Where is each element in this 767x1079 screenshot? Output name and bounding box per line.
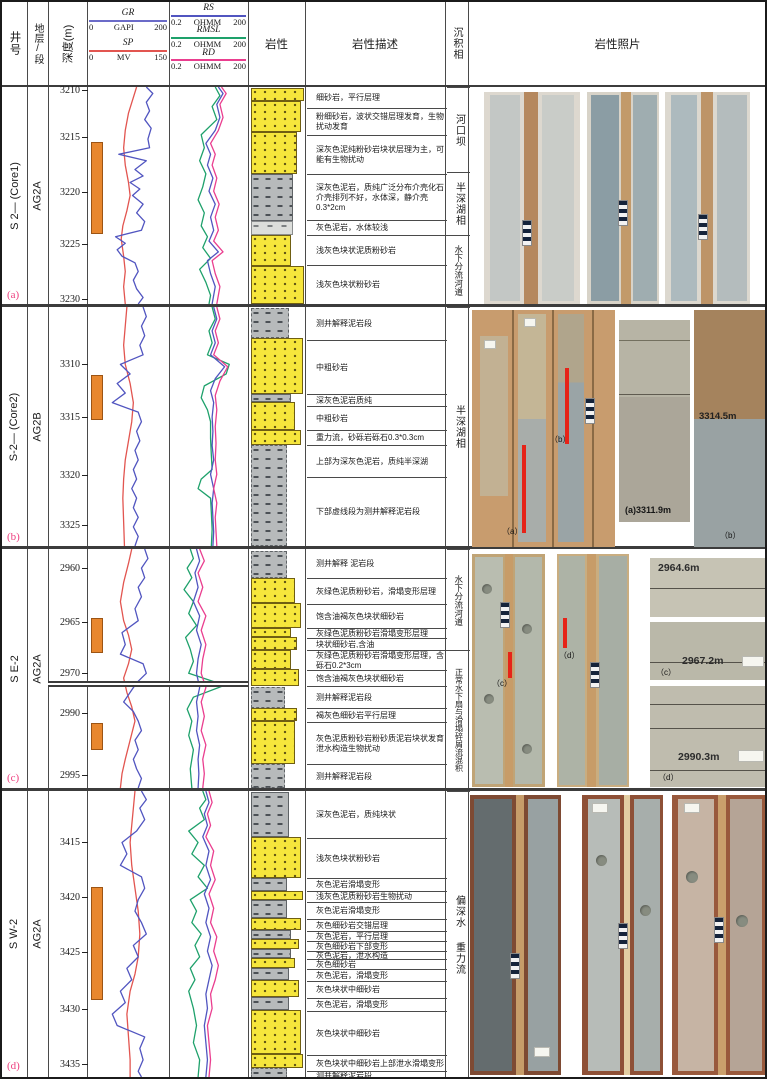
facies-label: 水下分流河道 <box>454 575 463 626</box>
curve-name-rd: RD <box>169 49 248 59</box>
lith-description: 灰绿色泥质粉砂岩滑塌变形层理，含砾石0.2*3cm <box>307 650 447 670</box>
lith-description: 饱含油褐灰色块状细砂岩 <box>307 670 447 686</box>
curve-name-rmsl: RMSL <box>169 26 248 36</box>
core-tag <box>742 656 764 667</box>
scale-card <box>714 917 724 943</box>
lith-unit-mudstone <box>251 687 285 708</box>
photo-annotation: (a)3311.9m <box>625 506 671 515</box>
panel-c-formation-label: AG2A <box>32 654 44 683</box>
rd-scale-hi: 200 <box>233 62 246 71</box>
lith-description: 下部虚线段为测井解释泥岩段 <box>307 477 447 546</box>
grid-line <box>248 2 249 1077</box>
depth-label: 2990 <box>44 708 80 719</box>
core-photo <box>484 92 580 304</box>
rd-scale-lo: 0.2 <box>171 62 182 71</box>
grid-line <box>305 2 306 1077</box>
core-tag <box>738 750 764 762</box>
lith-unit-gravel-sandstone <box>251 430 301 445</box>
photo-annotation: 3314.5m <box>699 412 737 422</box>
header-stratum-label: 地层/段 <box>30 23 45 64</box>
core-tag <box>592 803 608 813</box>
lith-unit-sandstone <box>251 235 291 266</box>
panel-label-c: (c) <box>7 772 19 784</box>
lith-unit-sandstone <box>251 837 301 878</box>
core-plug-hole <box>640 905 651 916</box>
core-photo <box>587 92 659 304</box>
lith-description: 浅灰色块状泥质粉砂岩 <box>307 235 447 265</box>
facies-zone: 水下分流河道 <box>447 235 470 304</box>
lith-unit-sandstone <box>251 918 301 930</box>
core-strip <box>474 799 512 1071</box>
wood-divider <box>516 795 524 1075</box>
panel-d-formation-label: AG2A <box>32 919 44 948</box>
core-plug-hole <box>482 584 492 594</box>
lith-description: 灰色泥岩，滑塌变形 <box>307 998 447 1011</box>
core-strip <box>694 420 767 547</box>
lith-description: 块状细砂岩,含油 <box>307 638 447 650</box>
lith-unit-sandstone <box>251 338 303 394</box>
lith-description: 重力流，砂砾岩砾石0.3*0.3cm <box>307 430 447 445</box>
lith-description: 浅灰色块状粉砂岩 <box>307 265 447 304</box>
panel-label-a: (a) <box>7 289 19 301</box>
depth-label: 3210 <box>44 85 80 96</box>
core-strip <box>633 95 657 301</box>
crack-line <box>650 728 767 729</box>
photo-annotation: （c） <box>656 669 676 677</box>
header-photo: 岩性照片 <box>468 2 767 85</box>
lith-description: 测井解释泥岩段 <box>307 764 447 788</box>
core-strip <box>678 799 714 1071</box>
lith-unit-sandstone <box>251 650 291 669</box>
crack-line <box>650 704 767 705</box>
depth-label: 3415 <box>44 837 80 848</box>
lith-unit-mudstone <box>251 394 291 402</box>
photo-annotation: （b） <box>720 532 740 540</box>
lith-description: 粉细砂岩，波状交错层理发育，生物扰动发育 <box>307 108 447 135</box>
wood-divider <box>524 92 538 304</box>
lith-description: 灰色块状中细砂岩上部泄水滑塌变形 <box>307 1055 447 1071</box>
header-lithology-label: 岩性 <box>265 36 288 52</box>
facies-zone: 偏深水 重力流 <box>447 791 470 1077</box>
lith-unit-sandstone <box>251 958 295 968</box>
sp-scale-lo: 0 <box>89 53 93 62</box>
lith-description: 中粗砂岩 <box>307 340 447 394</box>
log-track-res-d <box>170 791 248 1077</box>
rs-scale-hi: 200 <box>233 18 246 27</box>
photo-annotation: （a） <box>502 528 522 536</box>
core-tag <box>534 1047 550 1057</box>
scale-card <box>618 200 628 226</box>
scale-card <box>618 923 628 949</box>
core-marker-red <box>508 652 512 678</box>
scale-card <box>500 602 510 628</box>
lith-description: 灰色细砂岩交错层理 <box>307 919 447 931</box>
header-lithology: 岩性 <box>248 2 305 85</box>
lith-description: 深灰色泥岩质纯 <box>307 394 447 406</box>
header-track-gr-sp: GR 0 GAPI 200 SP 0 MV 150 <box>87 2 169 85</box>
panel-b-well-name: S-2— (Core2) <box>2 307 27 546</box>
panel-a-well-label: S 2— (Core1) <box>9 162 21 230</box>
core-strip <box>671 95 697 301</box>
header-track-resistivity: RS 0.2 OHMM 200 RMSL 0.2 OHMM 200 RD 0.2… <box>169 2 248 85</box>
core-plug-hole <box>522 744 532 754</box>
log-track-res-c <box>170 549 248 788</box>
scale-card <box>522 220 532 246</box>
core-photo <box>672 795 767 1075</box>
panel-b-formation: AG2B <box>27 307 48 546</box>
core-closeup-photo: (a)3311.9m <box>619 320 690 522</box>
header-stratum: 地层/段 <box>27 2 48 85</box>
lith-unit-sandstone <box>251 603 301 628</box>
photo-annotation: （d） <box>658 774 678 782</box>
panel-b-well-label: S-2— (Core2) <box>9 392 21 460</box>
core-photo: （d） <box>557 554 629 787</box>
panel-label-d: (d) <box>7 1060 20 1072</box>
depth-label: 3215 <box>44 132 80 143</box>
lith-unit-sandstone <box>251 101 301 132</box>
facies-label: 偏深水 <box>454 895 464 928</box>
core-photo <box>470 795 561 1075</box>
depth-label: 3325 <box>44 520 80 531</box>
log-track-gr-sp-d <box>88 791 169 1077</box>
facies-label: 半深湖相 <box>454 405 464 449</box>
lith-unit-mudstone <box>251 1068 287 1078</box>
core-strip <box>542 95 574 301</box>
core-strip <box>558 314 584 542</box>
wood-divider <box>701 92 713 304</box>
panel-b-formation-label: AG2B <box>32 412 44 441</box>
lith-description: 深灰色泥岩，质纯广泛分布介壳化石介壳排列不好，水体深，静介壳0.3*2cm <box>307 174 447 220</box>
core-tag <box>524 318 536 327</box>
lith-unit-sandstone <box>251 132 297 174</box>
depth-label: 3425 <box>44 947 80 958</box>
lith-unit-mudstone <box>251 900 287 918</box>
depth-label: 3220 <box>44 187 80 198</box>
core-plug-hole <box>522 624 532 634</box>
lith-unit-mudstone <box>251 930 291 939</box>
core-tag <box>684 803 700 813</box>
photo-annotation: 2990.3m <box>678 752 719 763</box>
gr-scale-hi: 200 <box>154 23 167 32</box>
panel-d-formation: AG2A <box>27 791 48 1077</box>
log-track-res-b <box>170 307 248 546</box>
facies-label: 水下分流河道 <box>454 245 463 296</box>
panel-c-well-name: S E-2 <box>2 549 27 788</box>
lith-unit-mudstone <box>251 968 289 980</box>
gr-scale-lo: 0 <box>89 23 93 32</box>
lith-description: 深灰色泥岩，质纯块状 <box>307 791 447 838</box>
lith-description: 灰色泥岩，水体较浅 <box>307 220 447 235</box>
lith-description: 灰色泥岩，平行层理 <box>307 931 447 941</box>
sp-scale-unit: MV <box>117 53 131 62</box>
rmsl-scale-lo: 0.2 <box>171 40 182 49</box>
lith-unit-mudstone <box>251 878 287 891</box>
curve-scale-rd: 0.2 OHMM 200 <box>169 62 248 71</box>
lith-description: 灰色泥质粉砂岩粉砂质泥岩块状发育泄水构造生物扰动 <box>307 722 447 764</box>
facies-label: 重力流 <box>454 942 464 975</box>
facies-zone: 正常水下扇与滑塌碎屑流混积 <box>447 650 470 788</box>
header-facies-label: 沉积相 <box>449 27 464 60</box>
header-description: 岩性描述 <box>305 2 445 85</box>
lith-unit-sandstone <box>251 708 297 721</box>
header-depth: 深度(m) <box>48 2 87 85</box>
lith-unit-sandstone <box>251 402 295 430</box>
core-strip <box>588 799 620 1071</box>
curve-scale-sp: 0 MV 150 <box>87 53 169 62</box>
curve-name-rs: RS <box>169 4 248 14</box>
header-depth-label: 深度(m) <box>60 24 76 63</box>
crack-line <box>619 340 690 341</box>
scale-card <box>698 214 708 240</box>
lith-unit-sandstone <box>251 939 299 949</box>
header-photo-label: 岩性照片 <box>595 36 641 52</box>
crack-line <box>650 588 767 589</box>
core-strip <box>591 95 619 301</box>
rd-scale-unit: OHMM <box>194 62 221 71</box>
gr-scale-unit: GAPI <box>114 23 134 32</box>
lith-description: 灰色泥岩，泄水构造 <box>307 951 447 959</box>
lith-description: 测井解释泥岩段 <box>307 307 447 340</box>
lith-unit-sandstone <box>251 669 299 686</box>
lith-description: 饱含油褐灰色块状细砂岩 <box>307 604 447 628</box>
curve-name-sp: SP <box>87 39 169 49</box>
depth-label: 3435 <box>44 1059 80 1070</box>
header-description-label: 岩性描述 <box>352 36 398 52</box>
lith-description: 中粗砂岩 <box>307 406 447 430</box>
lith-description: 测井解释 泥岩段 <box>307 549 447 578</box>
lith-unit-mudstone <box>251 551 287 578</box>
panel-a-well-name: S 2— (Core1) <box>2 87 27 304</box>
scale-card <box>510 953 520 979</box>
depth-label: 3430 <box>44 1004 80 1015</box>
header-well-number: 井号 <box>2 2 27 85</box>
depth-label: 3315 <box>44 412 80 423</box>
lith-description: 浅灰色泥质粉砂岩生物扰动 <box>307 891 447 902</box>
panel-a-formation-label: AG2A <box>32 181 44 210</box>
depth-label: 2960 <box>44 563 80 574</box>
scale-card <box>585 398 595 424</box>
core-closeup-photo: 3314.5m （b） <box>694 310 767 547</box>
lith-description: 细砂岩，平行层理 <box>307 87 447 108</box>
lith-unit-mudstone-inferred <box>251 308 289 338</box>
core-closeup-photo: 2990.3m （d） <box>650 686 767 787</box>
lith-description: 测井解释泥岩段 <box>307 1071 447 1079</box>
curve-name-gr: GR <box>87 9 169 19</box>
lith-unit-mudstone <box>251 949 291 958</box>
core-strip <box>490 95 520 301</box>
facies-zone: 水下分流河道 <box>447 549 470 650</box>
core-marker-red <box>565 368 569 444</box>
core-plug-hole <box>596 855 607 866</box>
facies-zone: 半深湖相 <box>447 307 470 546</box>
lith-unit-sandstone <box>251 637 297 650</box>
box-slat <box>592 310 594 547</box>
photo-annotation: 2967.2m <box>682 656 723 667</box>
core-marker-red <box>563 618 567 648</box>
sp-scale-hi: 150 <box>154 53 167 62</box>
core-box-photo: （a） （b） <box>472 310 615 547</box>
core-plug-hole <box>736 915 748 927</box>
facies-zone: 河口坝 <box>447 87 470 172</box>
core-closeup-photo: 2964.6m <box>650 558 767 617</box>
lith-unit-sandstone <box>251 721 295 764</box>
log-track-res-a <box>170 87 248 304</box>
scale-card <box>590 662 600 688</box>
lith-description: 灰绿色泥质粉砂岩，滑塌变形层理 <box>307 578 447 604</box>
depth-label: 2995 <box>44 770 80 781</box>
core-photo <box>582 795 663 1075</box>
rs-scale-lo: 0.2 <box>171 18 182 27</box>
panel-d-well-name: S W-2 <box>2 791 27 1077</box>
lith-description: 测井解释泥岩段 <box>307 686 447 708</box>
core-plug-hole <box>484 694 494 704</box>
depth-label: 2965 <box>44 617 80 628</box>
lith-unit-sandstone <box>251 88 304 101</box>
core-strip <box>599 556 627 785</box>
core-tag <box>484 340 496 349</box>
photo-annotation: （c） <box>492 680 512 688</box>
photo-annotation: 2964.6m <box>658 563 699 574</box>
core-plug-hole <box>686 871 698 883</box>
lith-unit-mudstone-light <box>251 221 293 235</box>
lith-description: 灰绿色泥质粉砂岩滑塌变形层理 <box>307 628 447 638</box>
lith-unit-mudstone <box>251 445 287 546</box>
lith-description: 灰色泥岩，滑塌变形 <box>307 969 447 981</box>
core-box-photo: （c） <box>472 554 545 787</box>
lith-description: 上部为深灰色泥岩，质纯半深湖 <box>307 445 447 477</box>
core-marker-red <box>522 445 526 533</box>
depth-label: 3420 <box>44 892 80 903</box>
lith-unit-sandstone <box>251 628 291 637</box>
log-track-gr-sp-b <box>88 307 169 546</box>
lith-description: 灰色细砂岩 <box>307 959 447 969</box>
wood-divider <box>621 92 631 304</box>
lith-description: 灰色块状中细砂岩 <box>307 981 447 998</box>
panel-d-well-label: S W-2 <box>9 919 21 949</box>
lith-unit-mudstone <box>251 764 285 788</box>
photo-annotation: （d） <box>559 652 579 660</box>
lith-unit-mudstone <box>251 174 293 221</box>
lith-description: 褐灰色细砂岩平行层理 <box>307 708 447 722</box>
depth-label: 3310 <box>44 359 80 370</box>
depth-label: 3225 <box>44 239 80 250</box>
depth-label: 3230 <box>44 294 80 305</box>
crack-line <box>650 770 767 771</box>
lith-unit-sandstone <box>251 1054 303 1068</box>
box-slat <box>512 310 514 547</box>
core-strip <box>717 95 747 301</box>
facies-label: 半深湖相 <box>454 182 464 226</box>
box-slat <box>552 310 554 547</box>
log-track-gr-sp-a <box>88 87 169 304</box>
core-strip <box>480 336 508 496</box>
lith-unit-sandstone <box>251 266 304 304</box>
lith-unit-mudstone <box>251 997 289 1010</box>
lith-description: 灰色块状中细砂岩 <box>307 1011 447 1055</box>
core-strip <box>730 799 762 1071</box>
panel-label-b: (b) <box>7 531 20 543</box>
crack-line <box>619 394 690 395</box>
log-track-gr-sp-c <box>88 549 169 788</box>
lith-unit-sandstone <box>251 891 303 900</box>
lith-unit-sandstone <box>251 1010 301 1054</box>
rmsl-scale-hi: 200 <box>233 40 246 49</box>
depth-break-line <box>48 681 248 687</box>
lith-unit-sandstone <box>251 578 295 603</box>
lith-unit-mudstone <box>251 792 289 837</box>
facies-label: 正常水下扇与滑塌碎屑流混积 <box>455 668 463 772</box>
core-closeup-photo: 2967.2m （c） <box>650 622 767 680</box>
facies-label: 河口坝 <box>454 114 464 147</box>
core-strip <box>559 556 585 785</box>
depth-label: 2970 <box>44 668 80 679</box>
lith-description: 浅灰色块状粉砂岩 <box>307 838 447 878</box>
depth-label: 3320 <box>44 470 80 481</box>
header-facies: 沉积相 <box>445 2 468 85</box>
core-strip <box>634 799 660 1071</box>
header-well-number-label: 井号 <box>7 31 23 56</box>
photo-annotation: （b） <box>550 436 570 444</box>
lith-description: 深灰色泥纯粉砂岩块状层理为主，可能有生物扰动 <box>307 135 447 174</box>
core-photo <box>665 92 750 304</box>
lith-description: 灰色泥岩滑塌变形 <box>307 878 447 891</box>
grid-line <box>48 2 49 1077</box>
curve-scale-gr: 0 GAPI 200 <box>87 23 169 32</box>
core-strip <box>528 799 558 1071</box>
lith-description: 灰色细砂岩下部变形 <box>307 941 447 951</box>
well-log-composite-figure: 井号 地层/段 深度(m) GR 0 GAPI 200 SP 0 MV 150 … <box>0 0 767 1079</box>
lith-unit-sandstone <box>251 980 299 997</box>
facies-zone: 半深湖相 <box>447 172 470 235</box>
panel-c-well-label: S E-2 <box>9 655 21 683</box>
lith-description: 灰色泥岩滑塌变形 <box>307 902 447 919</box>
